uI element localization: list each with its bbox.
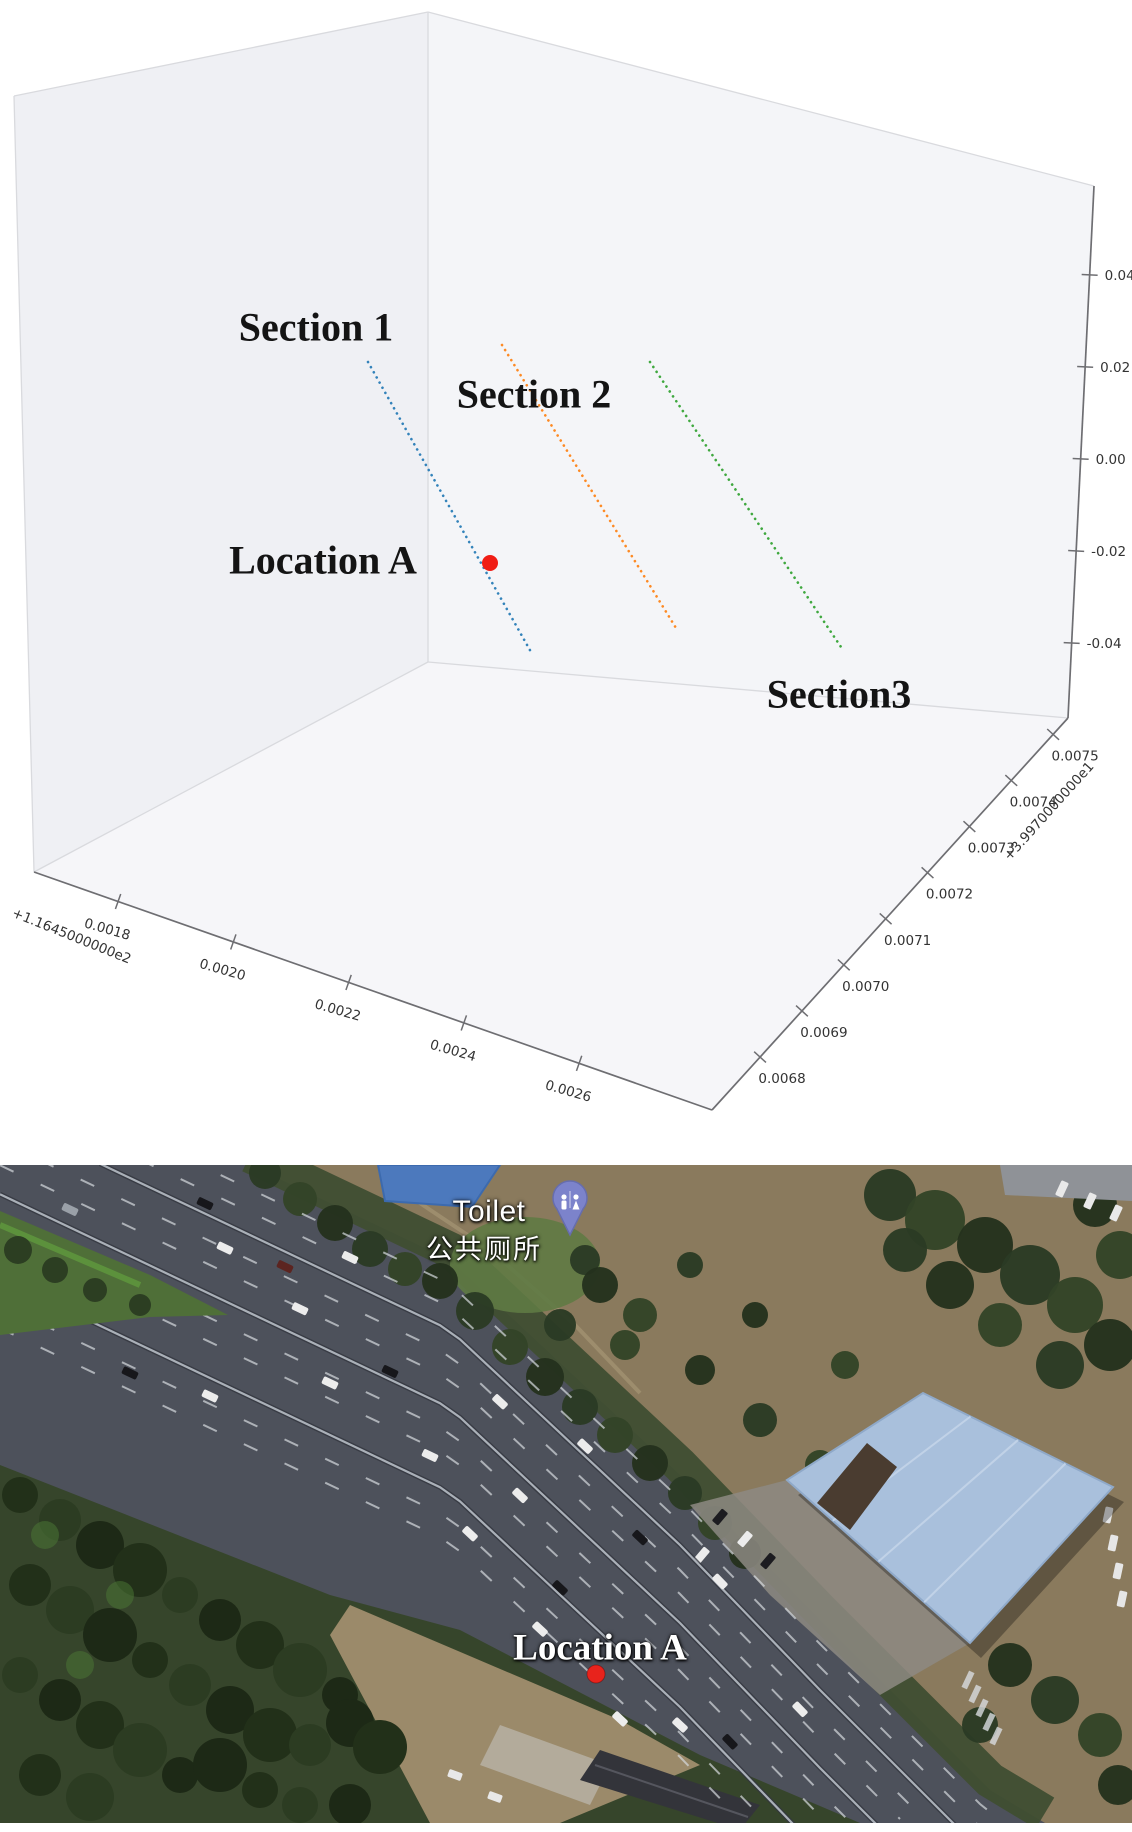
z-axis-tick-label: 0.00 (1096, 452, 1126, 468)
plot-3d-canvas: 0.00180.00200.00220.00240.00260.00680.00… (0, 0, 1132, 1140)
tree (39, 1679, 81, 1721)
tree (19, 1754, 61, 1796)
tree (597, 1417, 633, 1453)
x-axis-tick-label: 0.0024 (428, 1037, 478, 1065)
tree (113, 1723, 167, 1777)
tree (544, 1309, 576, 1341)
section-2-label: Section 2 (457, 371, 611, 418)
y-axis-tick-label: 0.0069 (800, 1025, 847, 1041)
y-axis-tick-label: 0.0075 (1051, 748, 1098, 764)
median-tree (129, 1294, 151, 1316)
toilet-poi-label-en: Toilet (452, 1195, 525, 1229)
tree (169, 1664, 211, 1706)
section-1-label: Section 1 (239, 304, 393, 351)
tree (273, 1643, 327, 1697)
x-axis-tick-label: 0.0022 (313, 996, 363, 1024)
plot-3d: 0.00180.00200.00220.00240.00260.00680.00… (0, 0, 1132, 1140)
tree (492, 1329, 528, 1365)
tree (677, 1252, 703, 1278)
tree (632, 1445, 668, 1481)
tree (743, 1403, 777, 1437)
toilet-poi-label-zh: 公共厕所 (426, 1228, 542, 1267)
bright-foliage (31, 1521, 59, 1549)
tree (582, 1267, 618, 1303)
male-figure-head (561, 1194, 566, 1199)
median-tree (4, 1236, 32, 1264)
z-axis-tick (1073, 459, 1089, 460)
tree (1078, 1713, 1122, 1757)
location-a-map-label: Location A (513, 1627, 687, 1670)
tree (282, 1787, 318, 1823)
tree (831, 1351, 859, 1379)
z-axis-tick (1077, 366, 1093, 367)
tree (685, 1355, 715, 1385)
median-tree (42, 1257, 68, 1283)
tree (162, 1757, 198, 1793)
pane-right-wall (428, 12, 1094, 718)
tree (9, 1564, 51, 1606)
y-axis-tick-label: 0.0070 (842, 979, 889, 995)
tree (1031, 1676, 1079, 1724)
tree (83, 1608, 137, 1662)
tree (883, 1228, 927, 1272)
z-axis-tick-label: 0.04 (1105, 268, 1132, 284)
z-axis-tick-label: -0.02 (1091, 544, 1126, 560)
z-axis-tick (1082, 274, 1098, 275)
z-axis-tick-label: 0.02 (1100, 360, 1130, 376)
y-axis-tick-label: 0.0068 (758, 1071, 805, 1087)
x-axis-tick-label: 0.0026 (543, 1077, 593, 1105)
tree (193, 1738, 247, 1792)
female-figure-head (573, 1194, 578, 1199)
section-3-label: Section3 (767, 671, 911, 718)
y-axis-tick-label: 0.0071 (884, 933, 931, 949)
location-a-plot-label: Location A (229, 537, 417, 584)
male-figure-body (562, 1201, 567, 1210)
tree (199, 1599, 241, 1641)
tree (926, 1261, 974, 1309)
tree (610, 1330, 640, 1360)
bright-foliage (106, 1581, 134, 1609)
tree (132, 1642, 168, 1678)
tree (1036, 1341, 1084, 1389)
tree (352, 1231, 388, 1267)
y-axis-tick-label: 0.0072 (926, 887, 973, 903)
tree (243, 1708, 297, 1762)
tree (978, 1303, 1022, 1347)
tree (283, 1182, 317, 1216)
satellite-map: Toilet 公共厕所 Location A (0, 1165, 1132, 1823)
z-axis-tick-label: -0.04 (1087, 636, 1122, 652)
tree (456, 1292, 494, 1330)
tree (742, 1302, 768, 1328)
x-axis-tick-label: 0.0020 (198, 956, 248, 984)
tree (988, 1643, 1032, 1687)
median-tree (83, 1278, 107, 1302)
tree (242, 1772, 278, 1808)
tree (353, 1720, 407, 1774)
satellite-map-canvas (0, 1165, 1132, 1823)
tree (422, 1263, 458, 1299)
tree (526, 1358, 564, 1396)
tree (2, 1477, 38, 1513)
tree (66, 1773, 114, 1821)
tree (162, 1577, 198, 1613)
figure-page: { "page": { "background": "#ffffff" }, "… (0, 0, 1132, 1832)
tree (289, 1724, 331, 1766)
location-a-point (482, 555, 498, 571)
tree (2, 1657, 38, 1693)
z-axis-tick (1064, 643, 1080, 644)
tree (623, 1298, 657, 1332)
z-axis-tick (1068, 551, 1084, 552)
bright-foliage (66, 1651, 94, 1679)
